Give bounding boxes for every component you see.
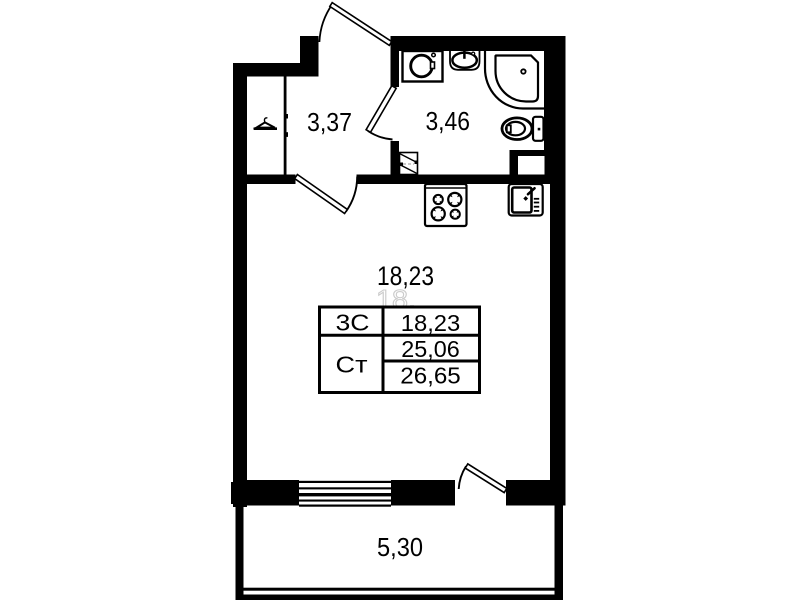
svg-text:3С: 3С	[336, 310, 370, 336]
svg-text:Ст: Ст	[336, 352, 369, 378]
svg-text:18,23: 18,23	[401, 310, 461, 336]
svg-text:3,46: 3,46	[425, 106, 470, 136]
svg-text:5,30: 5,30	[377, 532, 423, 562]
svg-text:3,37: 3,37	[307, 107, 352, 137]
svg-text:25,06: 25,06	[401, 336, 460, 362]
svg-text:26,65: 26,65	[400, 363, 461, 389]
